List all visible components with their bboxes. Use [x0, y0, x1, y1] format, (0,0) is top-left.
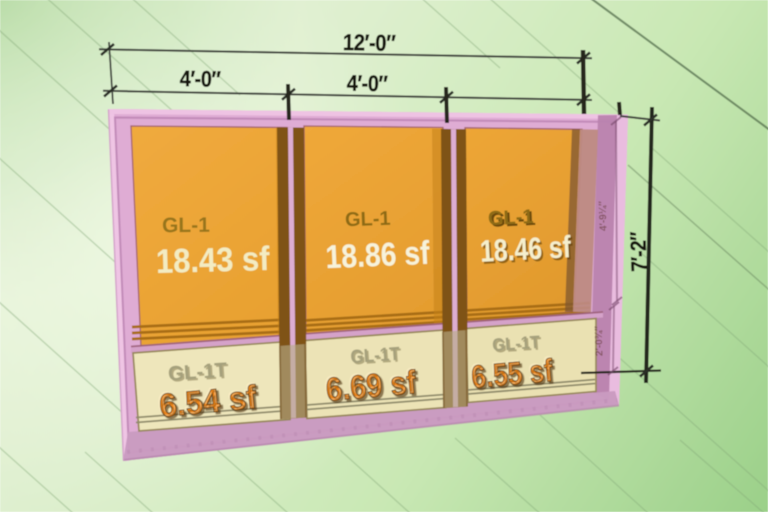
svg-text:GL-1T: GL-1T: [491, 331, 541, 355]
svg-text:18.43 sf: 18.43 sf: [155, 240, 270, 281]
svg-text:12′-0″: 12′-0″: [343, 29, 396, 56]
svg-text:2′-0¾″: 2′-0¾″: [593, 326, 605, 357]
svg-text:4′-9¼″: 4′-9¼″: [597, 201, 609, 232]
svg-text:4′-0″: 4′-0″: [347, 72, 388, 97]
svg-text:4′-0″: 4′-0″: [180, 67, 221, 92]
svg-text:GL-1: GL-1: [487, 206, 533, 230]
svg-text:GL-1T: GL-1T: [350, 343, 401, 367]
svg-text:GL-1: GL-1: [345, 208, 391, 232]
svg-text:6.55 sf: 6.55 sf: [470, 354, 555, 396]
svg-text:GL-1: GL-1: [162, 214, 210, 237]
svg-text:6.69 sf: 6.69 sf: [324, 363, 418, 408]
svg-text:18.46 sf: 18.46 sf: [479, 230, 572, 269]
svg-text:18.86 sf: 18.86 sf: [325, 234, 431, 276]
svg-text:7′-2″: 7′-2″: [626, 231, 652, 272]
